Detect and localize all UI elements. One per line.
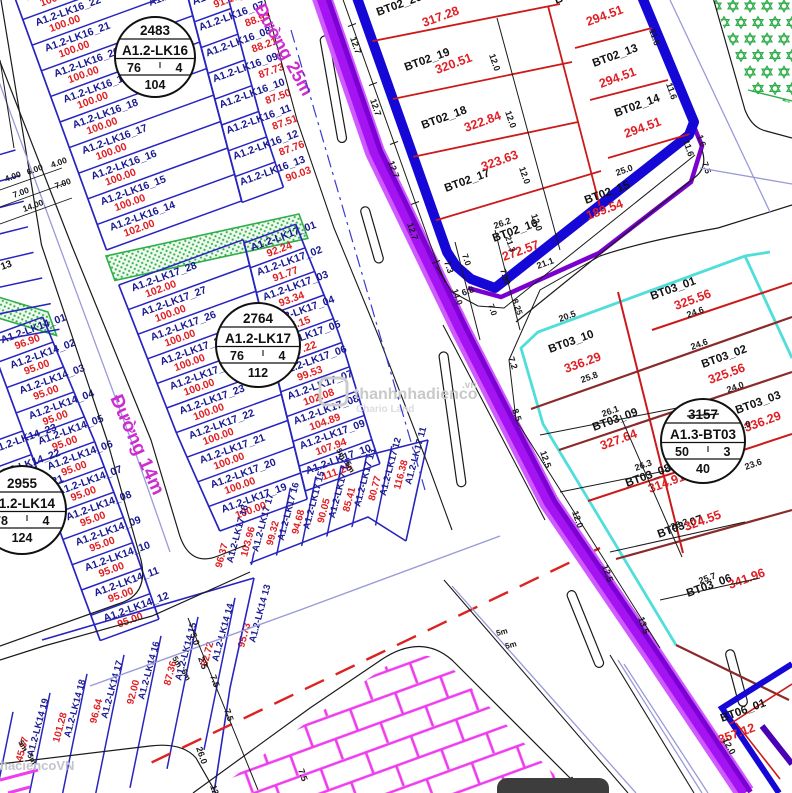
svg-text:2483: 2483 — [140, 23, 171, 38]
svg-text:.vn: .vn — [462, 380, 476, 391]
svg-text:4: 4 — [279, 349, 286, 363]
svg-text:40: 40 — [696, 462, 710, 476]
svg-text:124: 124 — [12, 531, 33, 545]
svg-text:4: 4 — [43, 514, 50, 528]
svg-text:76: 76 — [230, 349, 244, 363]
svg-text:2764: 2764 — [243, 311, 274, 326]
svg-text:thanhnhadienco: thanhnhadienco — [354, 386, 478, 403]
svg-text:A1.2-LK17: A1.2-LK17 — [225, 331, 291, 346]
svg-text:76: 76 — [127, 61, 141, 75]
svg-text:3: 3 — [724, 445, 731, 459]
svg-text:A1.2-LK14: A1.2-LK14 — [0, 496, 55, 511]
svg-text:A1.2-LK16: A1.2-LK16 — [122, 43, 189, 58]
svg-text:2955: 2955 — [7, 476, 38, 491]
svg-text:haciencoVN: haciencoVN — [0, 758, 74, 773]
svg-text:50: 50 — [675, 445, 689, 459]
svg-text:104: 104 — [145, 78, 166, 92]
svg-text:A1.3-BT03: A1.3-BT03 — [670, 427, 737, 442]
svg-text:Chario Land: Chario Land — [356, 404, 414, 415]
svg-text:112: 112 — [248, 366, 268, 380]
svg-text:78: 78 — [0, 514, 8, 528]
svg-text:4: 4 — [176, 61, 183, 75]
